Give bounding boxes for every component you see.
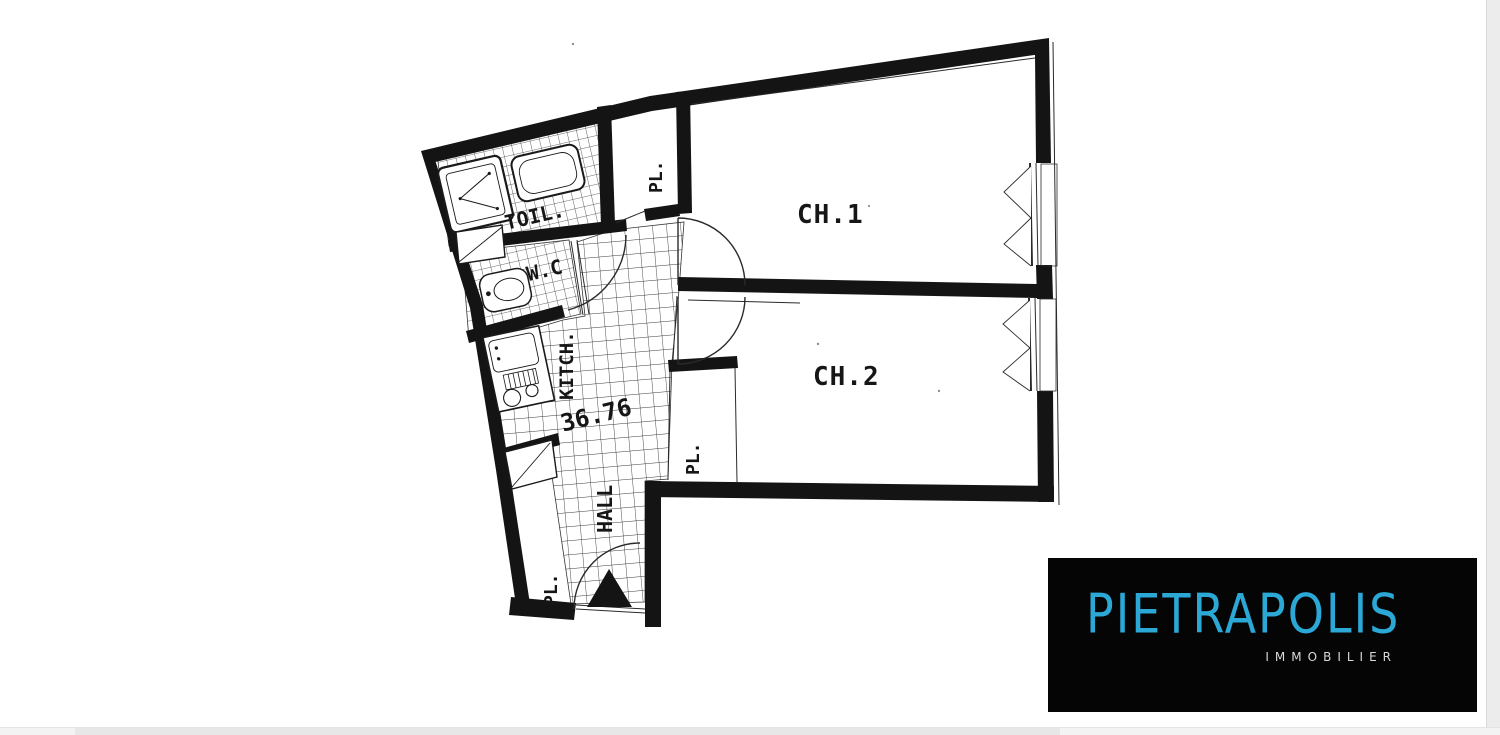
- bedroom2-label: CH.2: [813, 362, 880, 392]
- wall-bedroom-divider: [678, 277, 1037, 298]
- wall-entry-vertical: [645, 481, 661, 627]
- bedroom2-door-arc: [678, 297, 745, 364]
- window-bedroom2-icon: [1003, 298, 1056, 391]
- horizontal-scrollbar[interactable]: [0, 727, 1500, 735]
- wall-closet-top-right: [676, 91, 692, 214]
- bedroom1-door-arc: [678, 218, 745, 285]
- entry-threshold-line2: [576, 609, 645, 613]
- closet-entry-label: PL.: [541, 573, 562, 606]
- right-facade-outer-line: [1053, 42, 1059, 505]
- wall-closet-top-bottom: [644, 204, 680, 221]
- top-wall-inner-line: [692, 58, 1035, 104]
- wall-right-lower: [1037, 391, 1054, 502]
- wall-right-middle: [1036, 265, 1053, 299]
- hall-label: HALL: [593, 485, 617, 533]
- shower-icon: [437, 155, 514, 234]
- closet-bedroom2-door-line: [735, 368, 737, 482]
- window-bedroom1-icon: [1004, 163, 1057, 266]
- closet-top-door-line: [616, 211, 645, 223]
- horizontal-scrollbar-thumb[interactable]: [75, 728, 1060, 735]
- vertical-scrollbar[interactable]: [1486, 0, 1500, 735]
- agency-logo: PIETRAPOLIS IMMOBILIER: [1048, 558, 1477, 712]
- wall-bedroom2-bottom: [646, 481, 1054, 502]
- closet-top-label: PL.: [646, 160, 667, 193]
- closet-bedroom2-label: PL.: [683, 442, 704, 475]
- scanned-floor-plan-page: CH.1 CH.2 TOIL. W.C KITCH. 36.76 HALL PL…: [0, 0, 1500, 735]
- bathroom-cabinet-icon: [456, 225, 505, 264]
- divider-inner-line: [688, 300, 800, 303]
- wall-right-upper: [1035, 38, 1051, 163]
- bedroom1-label: CH.1: [797, 200, 864, 230]
- agency-brand-name: PIETRAPOLIS: [1086, 582, 1477, 646]
- kitchen-label: KITCH.: [556, 331, 578, 400]
- agency-tagline: IMMOBILIER: [1048, 650, 1397, 664]
